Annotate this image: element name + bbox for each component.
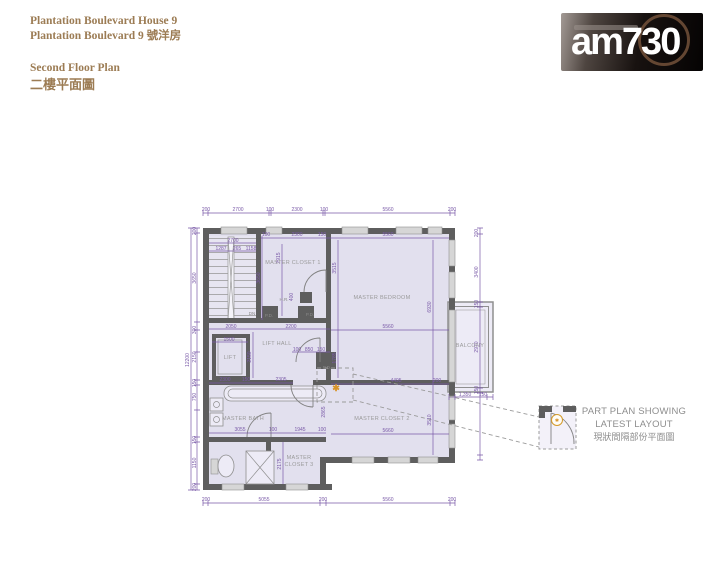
dimension-label: 2175 <box>277 458 283 469</box>
dimension-label: 100 <box>293 347 302 353</box>
dimension-label: 300 <box>192 326 198 335</box>
detail-reference-marker: ✱ <box>555 418 559 424</box>
room-label: LIFT <box>224 355 237 361</box>
dimension-label: 750 <box>192 393 198 402</box>
utility-label: H.R. <box>280 297 289 302</box>
dimension-label: 200 <box>192 227 198 236</box>
dimension-label: 200 <box>202 497 211 503</box>
dimension-label: 1158 <box>246 246 257 252</box>
dimension-label: 1287 <box>215 246 226 252</box>
dimension-label: 2865 <box>321 406 327 417</box>
dimension-label: 3650 <box>192 272 198 283</box>
dimension-label: 150 <box>317 347 326 353</box>
dimension-label: 2150 <box>192 351 198 362</box>
dimension-label: 2305 <box>275 377 286 383</box>
room-label: MASTER BEDROOM <box>353 295 410 301</box>
room-label: MASTER <box>287 455 312 461</box>
dimension-label: 200 <box>448 497 457 503</box>
dimension-label: 5055 <box>258 497 269 503</box>
dimension-label: 3055 <box>234 427 245 433</box>
dimension-label: 4495 <box>390 378 401 384</box>
note-line2: LATEST LAYOUT <box>581 419 687 432</box>
dimension-label: 150 <box>479 392 488 398</box>
dimension-label: 200 <box>448 207 457 213</box>
dimension-label: 5560 <box>382 324 393 330</box>
dimension-label: 100 <box>318 427 327 433</box>
dimension-label: 400 <box>289 293 295 302</box>
dimension-label: 100 <box>262 232 271 238</box>
dimension-label: 12200 <box>185 353 191 367</box>
dimension-label: 265 <box>233 246 242 252</box>
room-label: BALCONY <box>456 343 484 349</box>
dimension-label: 2300 <box>219 377 230 383</box>
note-line3: 現狀間隔部份平面圖 <box>581 431 687 444</box>
dimension-label: 5560 <box>382 232 393 238</box>
dimension-label: 150 <box>192 436 198 445</box>
room-label: MASTER BATH <box>222 416 264 422</box>
dimension-label: 1785 <box>332 352 338 363</box>
dimension-label: 2050 <box>225 324 236 330</box>
dimension-label: 200 <box>433 378 442 384</box>
basin <box>210 398 223 411</box>
dimension-label: 5560 <box>382 207 393 213</box>
toilet-tank <box>211 459 218 474</box>
dimension-label: 200 <box>474 229 480 238</box>
page: Plantation Boulevard House 9 Plantation … <box>0 0 709 578</box>
dimension-label: 200 <box>202 207 211 213</box>
dimension-label: 1150 <box>192 457 198 468</box>
layout-marker: ✱ <box>332 383 340 393</box>
floor-plan-canvas: ✱ ✱ 200270010023001005560200100230015055… <box>0 0 709 578</box>
part-plan-icon: ✱ <box>539 406 576 449</box>
bathtub <box>224 386 326 401</box>
dimension-label: 5560 <box>382 497 393 503</box>
dimension-label: 1,350 <box>459 392 472 398</box>
dimension-label: 5660 <box>382 428 393 434</box>
dimension-label: 150 <box>192 379 198 388</box>
room-label: MASTER CLOSET 2 <box>354 416 409 422</box>
dimension-label: 2300 <box>291 232 302 238</box>
dimension-label: 100 <box>320 207 329 213</box>
dimension-label: 3400 <box>474 266 480 277</box>
note-line1: PART PLAN SHOWING <box>581 406 687 419</box>
dimension-label: 3515 <box>332 262 338 273</box>
dimension-label: 2150 <box>247 351 253 362</box>
room-label: CLOSET 3 <box>285 462 314 468</box>
part-plan-note: PART PLAN SHOWING LATEST LAYOUT 現狀間隔部份平面… <box>581 406 687 444</box>
utility-label: P.D. <box>306 312 314 317</box>
dimension-label: 2700 <box>227 238 238 244</box>
dimension-label: 6930 <box>427 301 433 312</box>
dimension-label: 850 <box>305 347 314 353</box>
dimension-label: 2200 <box>285 324 296 330</box>
dimension-label: 1945 <box>294 427 305 433</box>
dimension-label: 2300 <box>291 207 302 213</box>
room-label: MASTER CLOSET 1 <box>265 260 320 266</box>
dimension-label: 2700 <box>232 207 243 213</box>
dimension-label: 150 <box>242 377 251 383</box>
utility-label: DN <box>249 311 256 316</box>
toilet-bowl <box>218 455 234 477</box>
dimension-label: 150 <box>474 300 480 309</box>
room-label: LIFT HALL <box>262 341 291 347</box>
dimension-label: 3510 <box>427 414 433 425</box>
dimension-label: 200 <box>319 497 328 503</box>
dimension-label: 100 <box>269 427 278 433</box>
utility-label: P.D. <box>265 313 273 318</box>
dimension-label: 1500 <box>223 337 234 343</box>
utility-label: P.D. <box>323 365 331 370</box>
dimension-label: 100 <box>266 207 275 213</box>
dimension-label: 3650 <box>256 272 262 283</box>
dimension-label: 150 <box>318 232 327 238</box>
dimension-label: 200 <box>192 483 198 492</box>
